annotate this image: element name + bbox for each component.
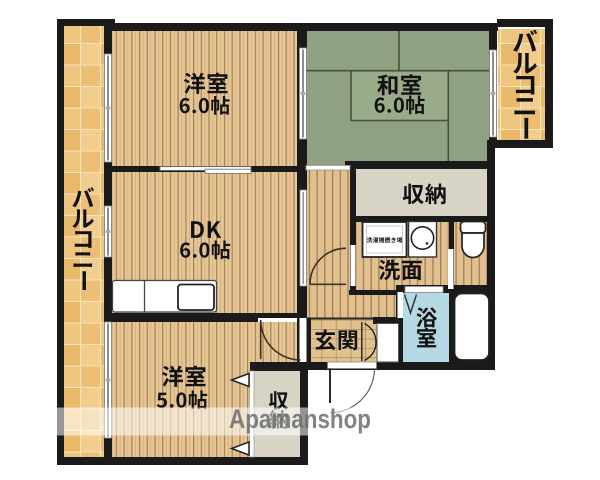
svg-text:Apamanshop: Apamanshop: [229, 404, 371, 434]
